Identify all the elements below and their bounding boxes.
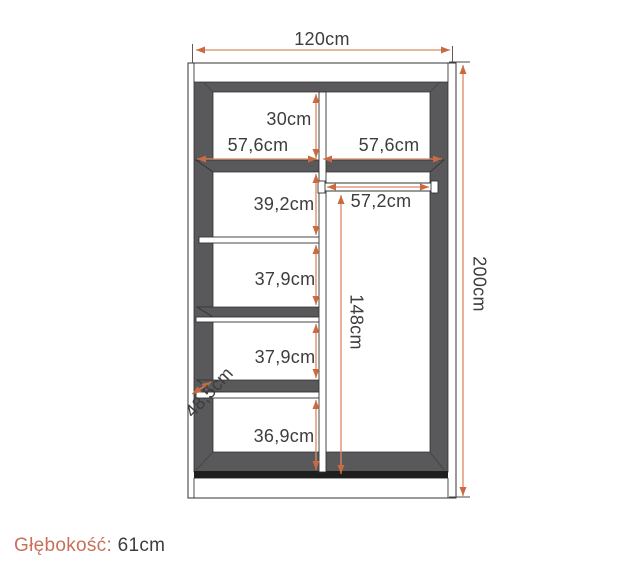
center-divider: [319, 92, 326, 472]
dim-overall-width-label: 120cm: [294, 29, 350, 49]
dim-left-width-label: 57,6cm: [228, 135, 289, 155]
diagram-svg: 120cm 200cm 30cm 57,6cm 57,6cm 39,2cm 57…: [0, 0, 640, 563]
dim-shelf-gap3-label: 37,9cm: [255, 347, 316, 367]
wardrobe-dimension-diagram: 120cm 200cm 30cm 57,6cm 57,6cm 39,2cm 57…: [0, 0, 640, 563]
dim-hanging-height-label: 148cm: [346, 294, 366, 350]
depth-note-value: 61cm: [118, 535, 166, 556]
rail-cap-left: [318, 181, 325, 193]
dim-bottom-section-label: 36,9cm: [254, 426, 315, 446]
rail-cap-right: [431, 181, 438, 193]
dim-shelf-gap2-label: 37,9cm: [255, 269, 316, 289]
dim-right-width-label: 57,6cm: [359, 135, 420, 155]
shelf-middle: [197, 307, 322, 317]
dim-overall-height-label: 200cm: [469, 256, 489, 312]
dim-rail-length-label: 57,2cm: [351, 191, 412, 211]
shelf-thin: [199, 237, 322, 243]
shelf-middle-front-edge: [196, 317, 322, 322]
depth-note-label: Głębokość:: [14, 535, 112, 556]
dim-shelf-gap1-label: 39,2cm: [254, 194, 315, 214]
dim-top-shelf-label: 30cm: [266, 109, 311, 129]
depth-note: Głębokość: 61cm: [14, 535, 165, 557]
